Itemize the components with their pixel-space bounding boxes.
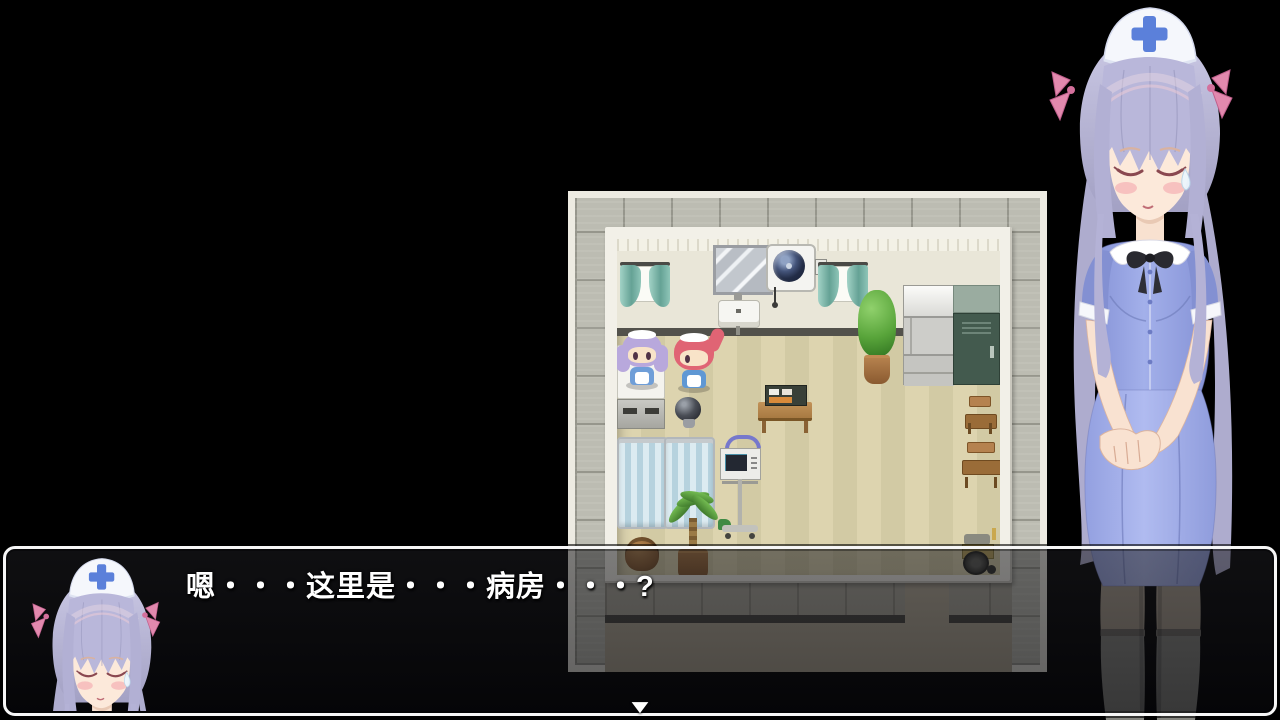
dialogue-window[interactable]: 嗯・・・这里是・・・病房・・・? ▼	[3, 546, 1277, 716]
fridge-door-mid	[904, 316, 954, 354]
wall-sink	[718, 293, 758, 335]
chair-back	[967, 442, 995, 453]
wooden-chair	[965, 396, 995, 434]
monitor-buttons	[751, 455, 757, 469]
continue-indicator[interactable]: ▼	[626, 698, 654, 717]
fan-cord	[774, 287, 776, 303]
table-leg	[804, 421, 808, 433]
fridge-door-top	[904, 286, 954, 316]
ventilation-fan	[766, 244, 816, 292]
cart-base	[722, 525, 758, 532]
locker-door	[953, 313, 1000, 385]
wooden-chair	[962, 442, 1000, 488]
plant-leaves	[858, 290, 896, 356]
cart-wheel	[749, 533, 755, 539]
fridge-drawers	[904, 354, 954, 386]
meal-table	[758, 385, 812, 433]
npc-purple-maid[interactable]	[618, 330, 666, 390]
drain	[736, 309, 741, 313]
locker	[953, 285, 1000, 383]
chair-back	[969, 396, 991, 407]
maid-headband	[628, 330, 656, 339]
window-left	[620, 262, 670, 310]
eye-icon	[633, 352, 638, 360]
medical-monitor-cart	[718, 435, 762, 543]
cart-pole	[738, 479, 742, 527]
basin	[718, 300, 760, 328]
game-screen: 嗯・・・这里是・・・病房・・・? ▼	[0, 0, 1280, 720]
eye-icon	[685, 355, 690, 363]
refrigerator	[903, 285, 955, 385]
pipe	[736, 326, 740, 335]
meal-tray	[765, 385, 807, 406]
potted-plant	[858, 290, 896, 384]
table-leg	[762, 421, 766, 433]
chair-seat	[962, 460, 1000, 475]
bin-base	[683, 419, 695, 428]
npc-pink-maid[interactable]	[670, 333, 718, 393]
sprite-apron	[635, 372, 649, 384]
bin-lid	[675, 397, 701, 421]
chair-leg	[994, 477, 997, 488]
cart-wheel	[725, 533, 731, 539]
ward-room	[617, 239, 1000, 575]
sprite-face	[628, 347, 656, 363]
fan-hub	[786, 263, 792, 269]
chair-leg	[965, 477, 968, 488]
plant-pot	[864, 355, 890, 384]
wall-mirror	[713, 245, 773, 295]
sprite-apron	[687, 375, 701, 387]
hair-ribbon-left	[1050, 72, 1075, 120]
wheelchair-handle	[992, 528, 996, 540]
trash-bin	[675, 397, 703, 433]
eye-icon	[646, 352, 651, 360]
bed-frame	[617, 399, 665, 429]
monitor-screen	[725, 454, 747, 471]
privacy-screen	[617, 437, 668, 529]
nurse-portrait	[30, 553, 164, 711]
maid-headband	[680, 333, 708, 342]
chair-leg	[968, 423, 971, 434]
monitor-unit	[720, 448, 761, 480]
locker-top-panel	[953, 285, 1000, 313]
dialogue-text: 嗯・・・这里是・・・病房・・・?	[186, 563, 655, 605]
chair-leg	[989, 423, 992, 434]
sprite-face	[680, 350, 708, 366]
